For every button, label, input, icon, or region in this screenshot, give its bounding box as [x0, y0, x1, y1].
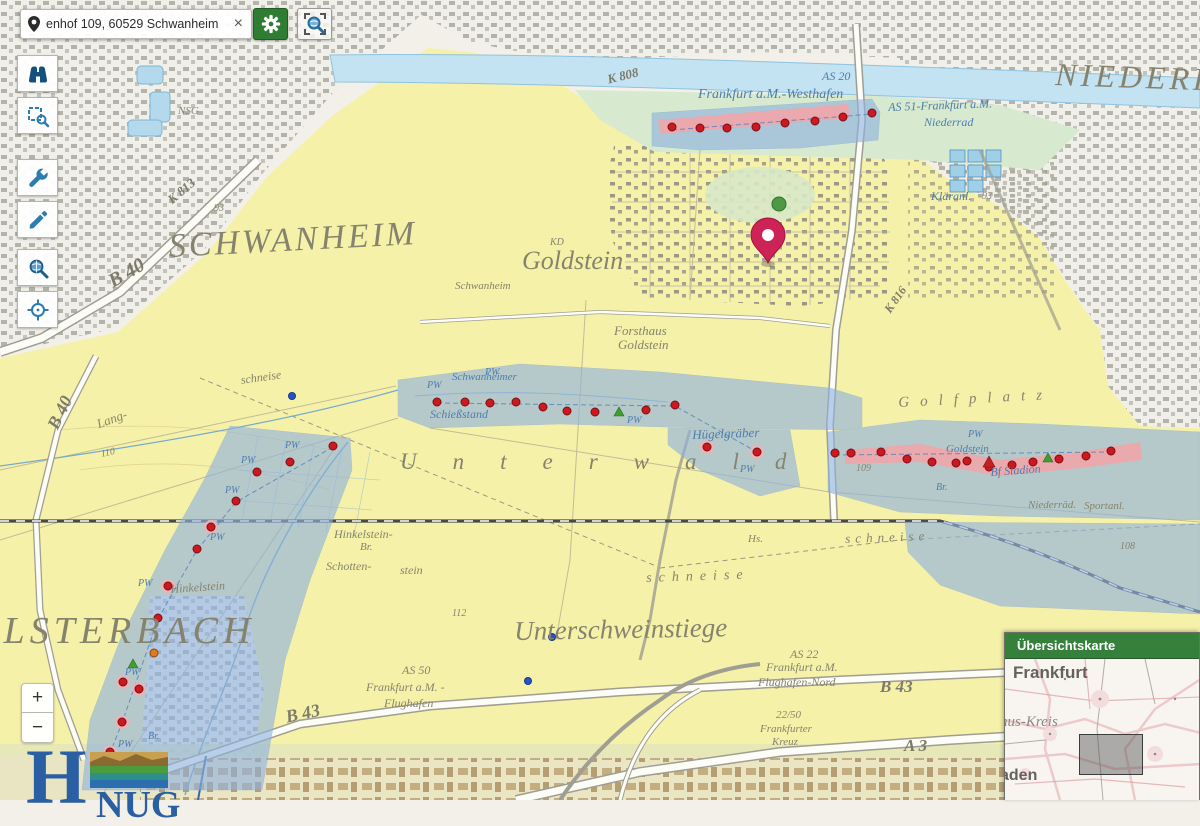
well-marker — [253, 468, 261, 476]
well-marker — [781, 119, 789, 127]
well-marker — [753, 448, 761, 456]
gear-icon — [261, 14, 281, 34]
settings-button[interactable] — [253, 8, 288, 40]
well-marker — [903, 455, 911, 463]
toolbar-button-tools[interactable] — [17, 159, 58, 196]
well-marker — [591, 408, 599, 416]
blue-point-marker — [525, 678, 532, 685]
well-marker — [752, 123, 760, 131]
well-marker — [868, 109, 876, 117]
search-bar[interactable]: × — [20, 9, 252, 39]
hlnug-logo: H NUG — [26, 744, 216, 800]
crosshair-icon — [26, 298, 50, 322]
well-marker — [811, 117, 819, 125]
well-marker — [671, 401, 679, 409]
well-marker — [433, 398, 441, 406]
well-marker — [1082, 452, 1090, 460]
search-input[interactable] — [46, 17, 227, 31]
magnifier-globe-icon — [26, 256, 50, 280]
well-marker — [928, 458, 936, 466]
well-marker — [154, 614, 162, 622]
magnifier-globe-icon — [303, 12, 327, 36]
active-tool-indicator — [58, 201, 63, 239]
well-marker — [329, 442, 337, 450]
toolbar-button-explore[interactable] — [17, 249, 58, 286]
well-marker — [831, 449, 839, 457]
toolbar-button-draw[interactable] — [17, 201, 58, 238]
blue-point-marker — [549, 634, 556, 641]
active-tool-indicator — [58, 97, 63, 135]
overview-map-label: aden — [1005, 767, 1037, 785]
clear-search-button[interactable]: × — [233, 16, 244, 32]
overview-header[interactable]: Übersichtskarte — [1005, 633, 1199, 659]
zoom-box-icon — [26, 104, 50, 128]
zoom-in-button[interactable]: + — [21, 683, 54, 713]
well-marker — [839, 113, 847, 121]
overview-panel: Übersichtskarte Frankfurtnus-Kr — [1004, 632, 1200, 800]
location-pin-icon — [28, 16, 40, 32]
wrench-icon — [26, 166, 50, 190]
well-marker — [164, 582, 172, 590]
overview-title: Übersichtskarte — [1017, 638, 1115, 653]
active-tool-indicator — [58, 159, 63, 197]
well-marker — [563, 407, 571, 415]
well-marker — [703, 443, 711, 451]
well-marker — [642, 406, 650, 414]
logo-landscape-icon — [90, 752, 168, 788]
well-marker — [877, 448, 885, 456]
well-marker — [119, 678, 127, 686]
well-marker — [286, 458, 294, 466]
well-marker — [1055, 455, 1063, 463]
well-marker — [1008, 461, 1016, 469]
well-marker — [668, 123, 676, 131]
pencil-icon — [26, 208, 50, 232]
identify-button[interactable] — [297, 8, 332, 40]
well-marker — [232, 497, 240, 505]
well-marker — [193, 545, 201, 553]
well-marker — [1029, 458, 1037, 466]
well-marker — [847, 449, 855, 457]
well-marker — [952, 459, 960, 467]
overview-map[interactable]: Frankfurtnus-Kreisaden — [1005, 659, 1199, 800]
well-marker — [963, 457, 971, 465]
toolbar-button-locate[interactable] — [17, 291, 58, 328]
well-marker — [1107, 447, 1115, 455]
toolbar-button-search[interactable] — [17, 55, 58, 92]
logo-suffix: NUG — [96, 786, 180, 824]
well-marker — [135, 685, 143, 693]
well-marker — [486, 399, 494, 407]
extent-rectangle[interactable] — [1079, 734, 1143, 775]
well-marker — [696, 124, 704, 132]
well-marker — [461, 398, 469, 406]
well-marker — [512, 398, 520, 406]
orange-point-marker — [150, 649, 158, 657]
overview-map-label: Frankfurt — [1013, 663, 1088, 683]
blue-point-marker — [289, 393, 296, 400]
binoculars-icon — [26, 62, 50, 86]
overview-map-label: nus-Kreis — [1005, 714, 1058, 731]
logo-letter: H — [26, 738, 87, 816]
well-marker — [723, 124, 731, 132]
well-marker — [539, 403, 547, 411]
toolbar-button-zoom-select[interactable] — [17, 97, 58, 134]
well-marker — [207, 523, 215, 531]
well-marker — [118, 718, 126, 726]
